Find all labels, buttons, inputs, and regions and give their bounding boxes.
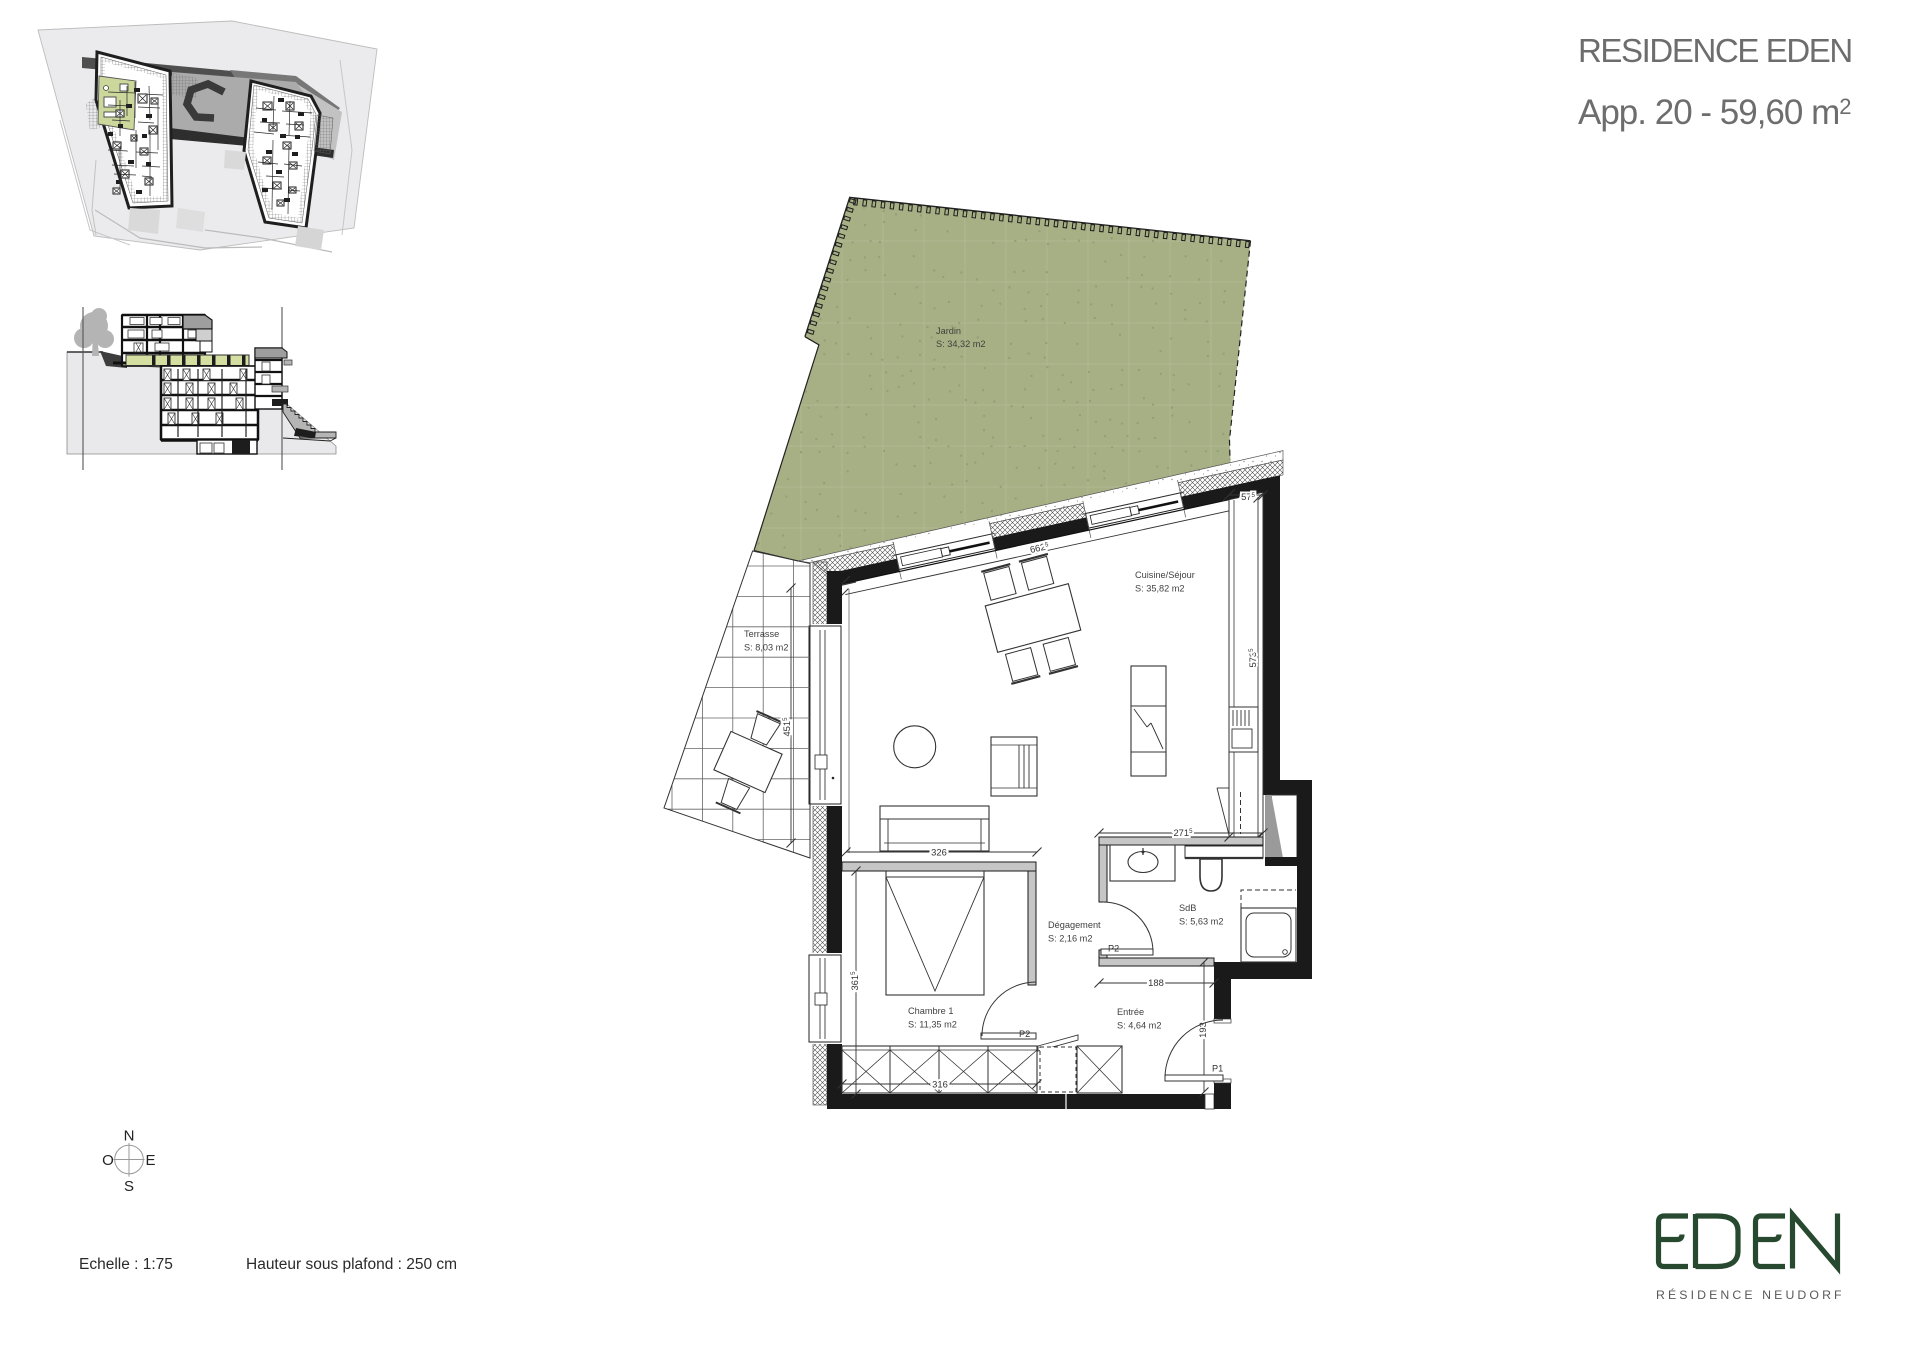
svg-text:Echelle : 1:75: Echelle : 1:75 bbox=[79, 1256, 173, 1273]
svg-text:SdB: SdB bbox=[1179, 903, 1196, 913]
svg-text:O: O bbox=[102, 1152, 114, 1169]
svg-text:316: 316 bbox=[932, 1079, 948, 1090]
svg-text:S: 4,64 m2: S: 4,64 m2 bbox=[1117, 1021, 1161, 1031]
svg-text:RÉSIDENCE NEUDORF: RÉSIDENCE NEUDORF bbox=[1656, 1287, 1845, 1302]
svg-text:Hauteur sous plafond : 250 cm: Hauteur sous plafond : 250 cm bbox=[246, 1256, 457, 1273]
svg-text:Dégagement: Dégagement bbox=[1048, 920, 1101, 930]
svg-text:S: 8,03 m2: S: 8,03 m2 bbox=[744, 643, 788, 653]
svg-text:P2: P2 bbox=[1019, 1029, 1030, 1039]
svg-text:App. 20 - 59,60 m2: App. 20 - 59,60 m2 bbox=[1578, 93, 1851, 132]
svg-text:Entrée: Entrée bbox=[1117, 1007, 1144, 1017]
svg-text:S: 2,16 m2: S: 2,16 m2 bbox=[1048, 934, 1092, 944]
svg-text:N: N bbox=[124, 1128, 135, 1145]
svg-text:Terrasse: Terrasse bbox=[744, 629, 779, 639]
svg-text:188: 188 bbox=[1148, 977, 1164, 988]
svg-text:P1: P1 bbox=[1212, 1064, 1223, 1074]
svg-text:S: 11,35 m2: S: 11,35 m2 bbox=[908, 1020, 957, 1030]
svg-text:P2: P2 bbox=[1108, 944, 1119, 954]
svg-text:Cuisine/Séjour: Cuisine/Séjour bbox=[1135, 570, 1195, 580]
svg-text:S: S bbox=[124, 1178, 134, 1195]
svg-text:RESIDENCE EDEN: RESIDENCE EDEN bbox=[1578, 32, 1852, 69]
svg-text:S: 34,32 m2: S: 34,32 m2 bbox=[936, 339, 986, 349]
svg-text:Chambre 1: Chambre 1 bbox=[908, 1006, 953, 1016]
svg-text:E: E bbox=[145, 1152, 155, 1169]
svg-text:193: 193 bbox=[1197, 1022, 1208, 1038]
svg-text:S: 35,82 m2: S: 35,82 m2 bbox=[1135, 584, 1185, 594]
svg-text:S: 5,63 m2: S: 5,63 m2 bbox=[1179, 917, 1223, 927]
svg-text:326: 326 bbox=[931, 847, 947, 858]
svg-text:Jardin: Jardin bbox=[936, 326, 961, 336]
